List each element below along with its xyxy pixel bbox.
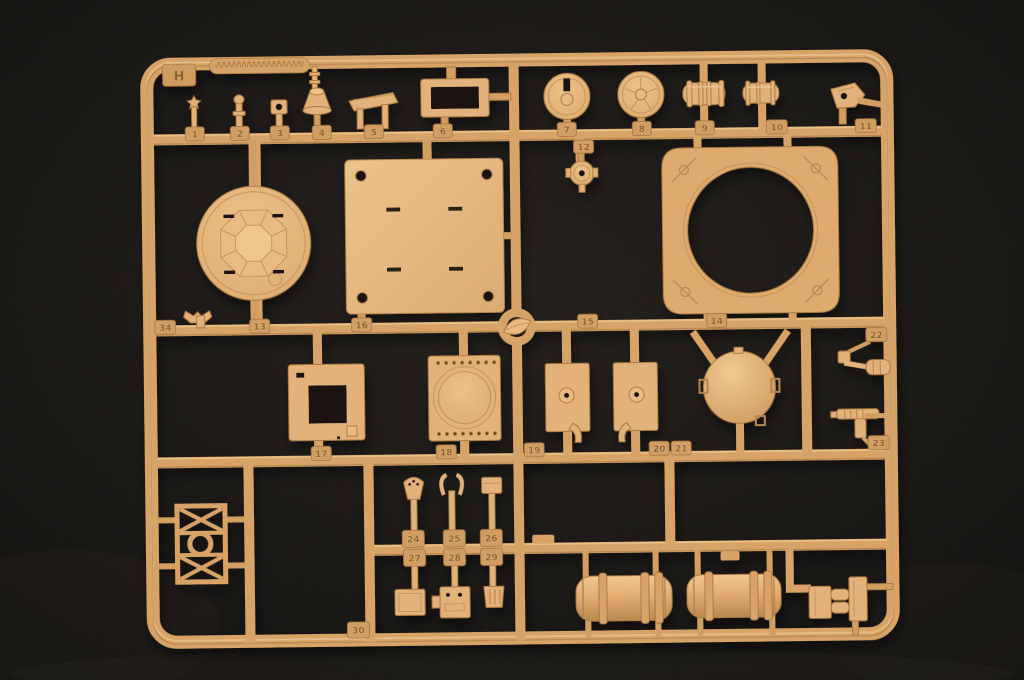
photo-grain-overlay — [0, 0, 1024, 680]
photo-stage: H — [0, 0, 1024, 680]
sprue-photo: H — [0, 0, 1024, 680]
